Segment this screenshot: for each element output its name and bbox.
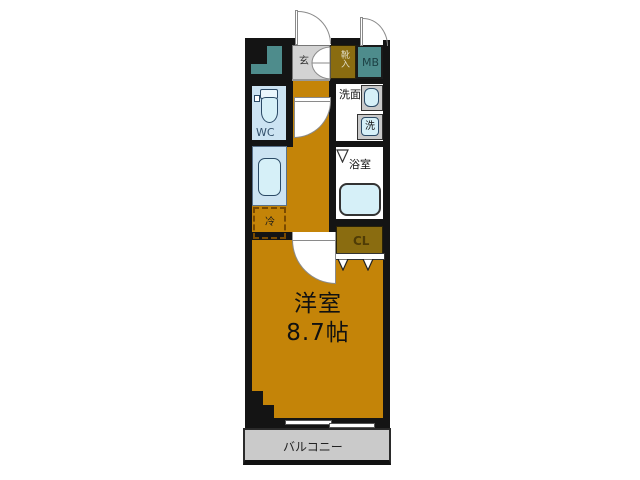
toilet-bowl-icon — [261, 97, 278, 123]
pipe-space-shape-horizontal — [251, 64, 282, 74]
wall-left — [245, 78, 252, 430]
shoe-cabinet-label: 靴入 — [339, 50, 348, 68]
toilet-label: WC — [256, 127, 275, 138]
washing-machine: 洗 — [357, 114, 383, 140]
balcony: バルコニー — [243, 428, 391, 465]
kitchen-counter — [252, 146, 287, 206]
toilet-room: WC — [252, 86, 286, 140]
bathroom-door-icon — [336, 149, 349, 163]
meter-box-label: MB — [362, 57, 379, 68]
wall-bath-closet-divider — [336, 219, 383, 226]
shoe-cabinet: 靴入 — [330, 45, 356, 79]
toilet-flush-icon — [254, 95, 260, 102]
balcony-label: バルコニー — [283, 441, 343, 453]
closet-door-fold-icon-right — [362, 259, 374, 271]
main-room-title: 洋室 8.7帖 — [252, 290, 384, 348]
bathtub-icon — [339, 183, 381, 216]
main-room-size: 8.7帖 — [252, 319, 384, 348]
refrigerator-label: 冷 — [265, 218, 275, 228]
closet-door-fold-icon-left — [337, 259, 349, 271]
meter-box-door-arc-icon — [363, 18, 388, 46]
main-room-label: 洋室 — [252, 290, 384, 319]
vanity-sink-icon — [364, 88, 379, 107]
entrance-step-line — [292, 79, 330, 81]
washing-machine-label: 洗 — [365, 122, 375, 132]
closet: CL — [336, 226, 383, 254]
entrance-label: 玄 — [299, 57, 309, 67]
meter-box: MB — [356, 45, 383, 79]
wall-right — [383, 40, 390, 430]
window-pane-left — [285, 420, 332, 425]
vanity-unit — [361, 85, 383, 111]
shoe-cabinet-door-arcs-icon — [310, 46, 331, 80]
washroom: 洗面 洗 — [336, 84, 383, 141]
main-room-doorway — [292, 232, 336, 240]
washroom-label: 洗面 — [339, 89, 361, 100]
pillar-bottom-left-lower — [251, 405, 274, 425]
floorplan-canvas: 玄 靴入 MB WC 冷 洗面 洗 — [0, 0, 640, 480]
closet-label: CL — [353, 235, 369, 247]
refrigerator-space: 冷 — [253, 207, 286, 239]
kitchen-sink-icon — [258, 158, 281, 196]
bathroom: 浴室 — [336, 147, 383, 219]
wall-wc-right — [286, 78, 293, 146]
entrance-door-arc-icon — [298, 11, 331, 44]
bathroom-label: 浴室 — [349, 159, 371, 170]
